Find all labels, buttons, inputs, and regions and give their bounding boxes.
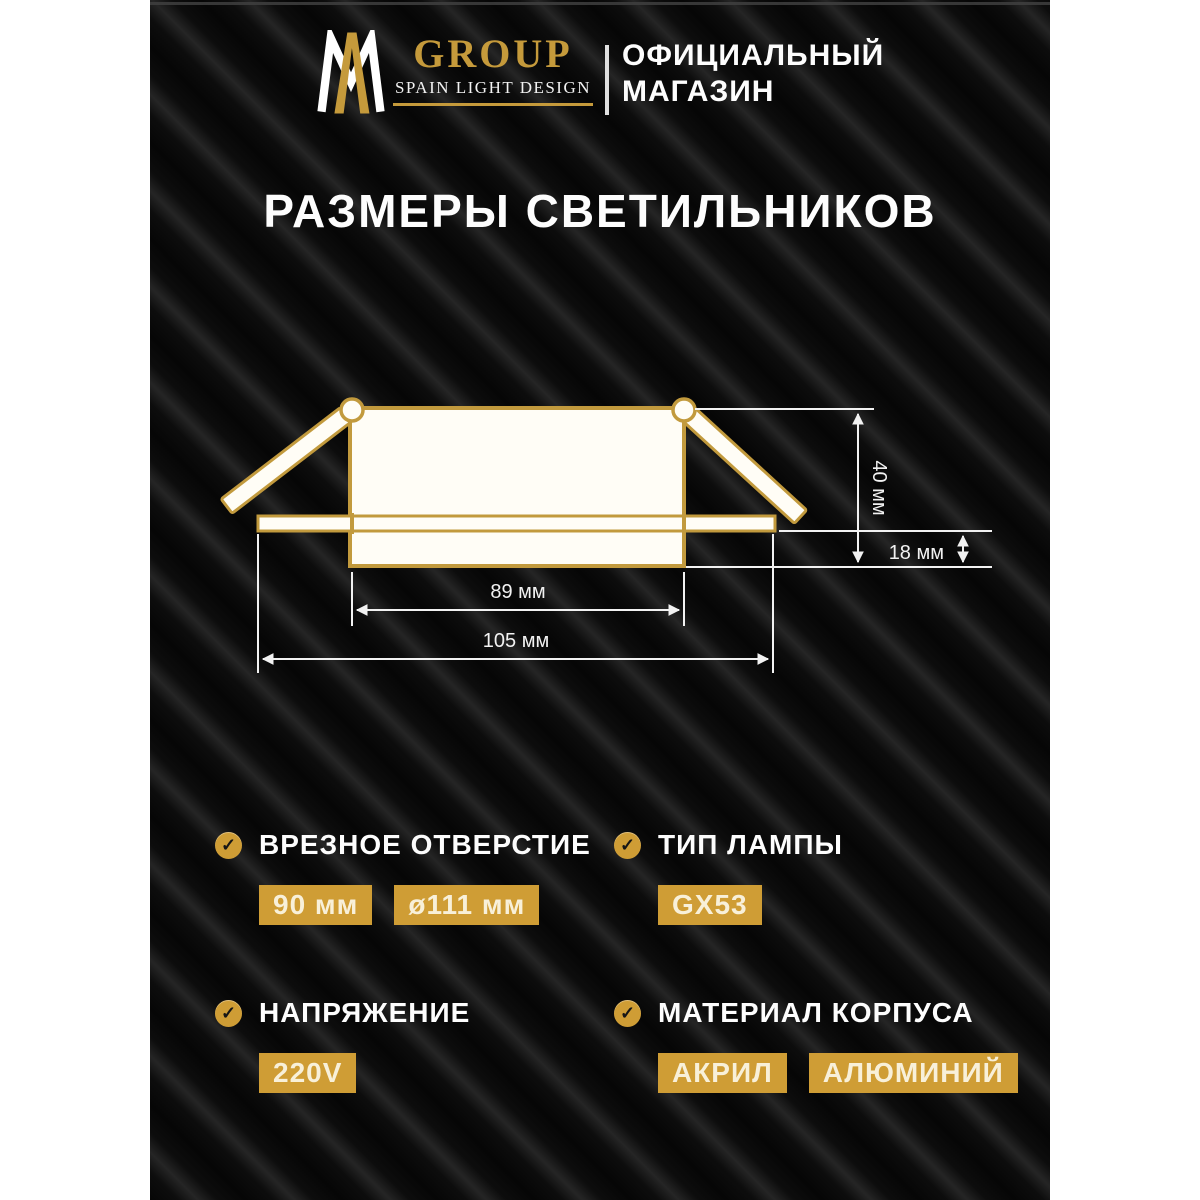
spec-value-badge: АЛЮМИНИЙ xyxy=(809,1053,1018,1093)
dim-label-flange-105mm: 105 мм xyxy=(483,630,549,652)
spec-cutout-hole: ✓ ВРЕЗНОЕ ОТВЕРСТИЕ 90 мм ø111 мм xyxy=(215,831,591,925)
dim-label-height-40mm: 40 мм xyxy=(868,460,890,515)
spec-badges: GX53 xyxy=(658,885,843,925)
check-icon: ✓ xyxy=(614,832,641,859)
brand-underline xyxy=(393,103,593,106)
official-store-line1: ОФИЦИАЛЬНЫЙ xyxy=(622,38,884,74)
brand-name: GROUP xyxy=(393,34,593,74)
official-store-line2: МАГАЗИН xyxy=(622,74,884,110)
check-icon: ✓ xyxy=(614,1000,641,1027)
fixture-body xyxy=(350,408,684,566)
fixture-dimension-diagram: 40 мм 18 мм 89 мм 105 мм xyxy=(150,380,1050,700)
spec-badges: 90 мм ø111 мм xyxy=(259,885,591,925)
infographic-canvas: GROUP SPAIN LIGHT DESIGN ОФИЦИАЛЬНЫЙ МАГ… xyxy=(150,0,1050,1200)
spec-value-badge: АКРИЛ xyxy=(658,1053,787,1093)
spec-label: ВРЕЗНОЕ ОТВЕРСТИЕ xyxy=(259,829,591,861)
dim-label-rim-18mm: 18 мм xyxy=(889,542,944,564)
header-divider xyxy=(605,45,609,115)
spec-badges: АКРИЛ АЛЮМИНИЙ xyxy=(658,1053,1018,1093)
infographic-page: { "header": { "monogram": "AM", "brand_n… xyxy=(0,0,1200,1200)
spec-head: ✓ ТИП ЛАМПЫ xyxy=(614,831,843,859)
spec-label: МАТЕРИАЛ КОРПУСА xyxy=(658,997,974,1029)
spring-clip-right xyxy=(684,409,807,524)
spec-lamp-type: ✓ ТИП ЛАМПЫ GX53 xyxy=(614,831,843,925)
spec-value-badge: 90 мм xyxy=(259,885,372,925)
spec-label: ТИП ЛАМПЫ xyxy=(658,829,843,861)
spec-label: НАПРЯЖЕНИЕ xyxy=(259,997,470,1029)
spec-head: ✓ ВРЕЗНОЕ ОТВЕРСТИЕ xyxy=(215,831,591,859)
spec-value-badge: 220V xyxy=(259,1053,356,1093)
spec-head: ✓ НАПРЯЖЕНИЕ xyxy=(215,999,470,1027)
spec-head: ✓ МАТЕРИАЛ КОРПУСА xyxy=(614,999,1018,1027)
check-glyph: ✓ xyxy=(221,1003,236,1024)
spec-value-badge: GX53 xyxy=(658,885,762,925)
spec-value-badge: ø111 мм xyxy=(394,885,539,925)
spring-clip-left xyxy=(221,408,351,514)
check-icon: ✓ xyxy=(215,832,242,859)
fixture-flange xyxy=(258,516,775,531)
official-store-label: ОФИЦИАЛЬНЫЙ МАГАЗИН xyxy=(622,38,884,110)
fixture-cross-section xyxy=(221,399,806,566)
dimension-lines xyxy=(258,409,992,673)
spec-badges: 220V xyxy=(259,1053,470,1093)
clip-pivot-left xyxy=(341,399,363,421)
spec-voltage: ✓ НАПРЯЖЕНИЕ 220V xyxy=(215,999,470,1093)
check-glyph: ✓ xyxy=(620,1003,635,1024)
page-title: РАЗМЕРЫ СВЕТИЛЬНИКОВ xyxy=(150,184,1050,238)
brand-text-block: GROUP SPAIN LIGHT DESIGN xyxy=(393,34,593,106)
dim-label-body-89mm: 89 мм xyxy=(490,581,545,603)
check-icon: ✓ xyxy=(215,1000,242,1027)
check-glyph: ✓ xyxy=(221,835,236,856)
am-monogram-logo-icon xyxy=(316,30,386,116)
spec-body-material: ✓ МАТЕРИАЛ КОРПУСА АКРИЛ АЛЮМИНИЙ xyxy=(614,999,1018,1093)
brand-tagline: SPAIN LIGHT DESIGN xyxy=(393,78,593,98)
check-glyph: ✓ xyxy=(620,835,635,856)
top-divider-line xyxy=(150,2,1050,5)
clip-pivot-right xyxy=(673,399,695,421)
